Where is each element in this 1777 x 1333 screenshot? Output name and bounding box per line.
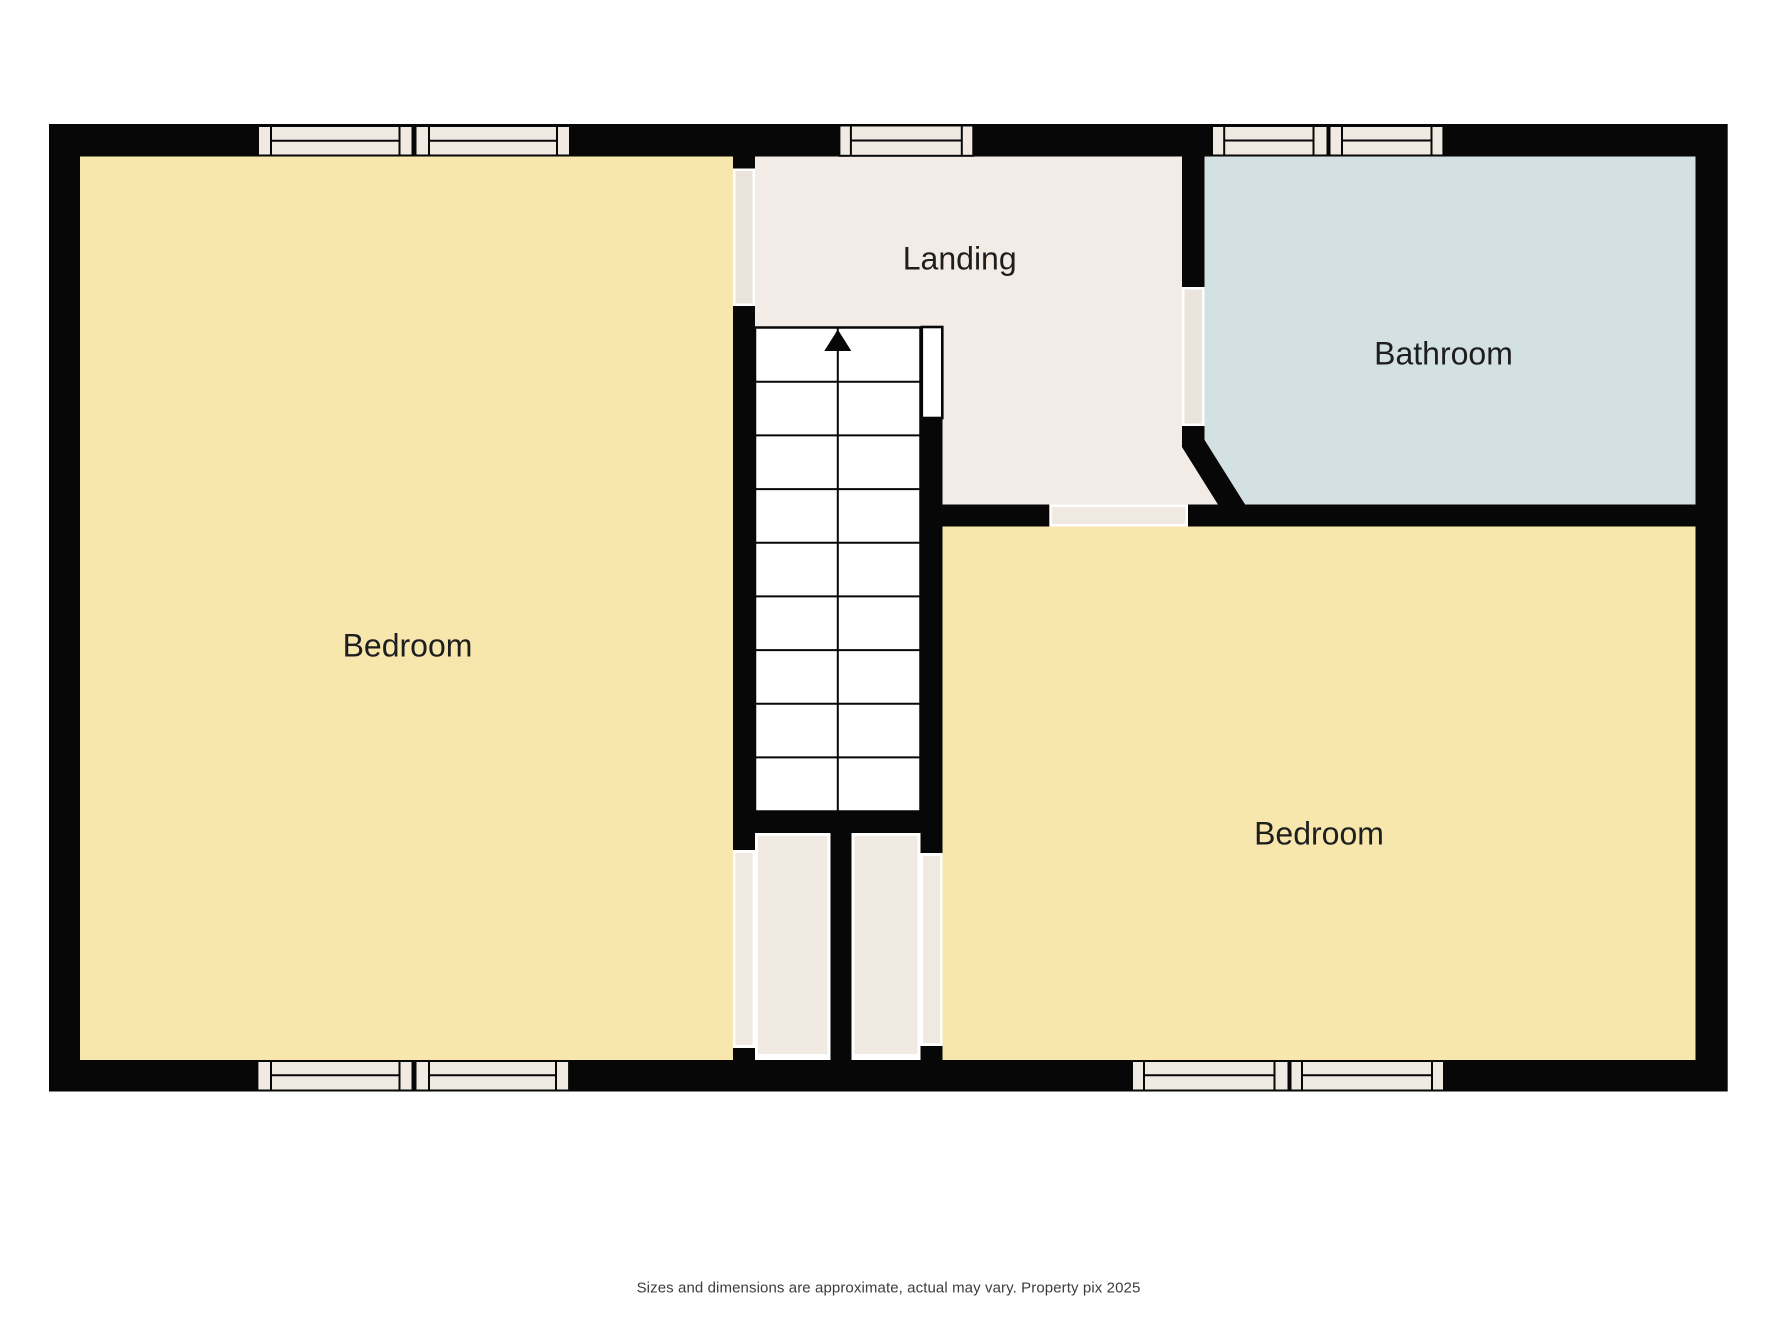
svg-text:Sizes and dimensions are appro: Sizes and dimensions are approximate, ac… — [637, 1280, 1141, 1297]
svg-text:Bedroom: Bedroom — [1254, 816, 1384, 852]
svg-text:Bedroom: Bedroom — [343, 627, 473, 663]
svg-text:Landing: Landing — [903, 241, 1017, 277]
svg-text:Bathroom: Bathroom — [1374, 336, 1513, 372]
